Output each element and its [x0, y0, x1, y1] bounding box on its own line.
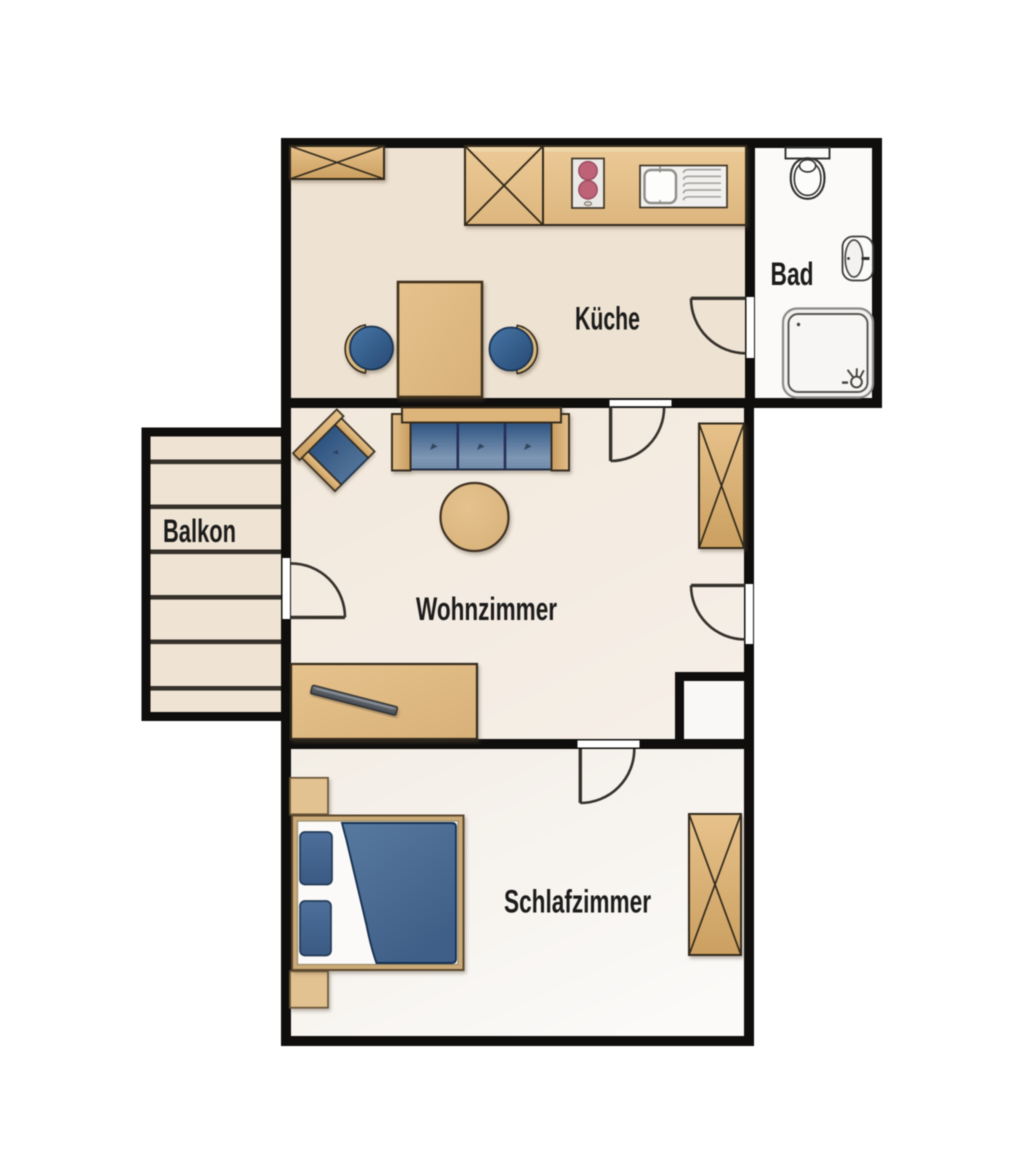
svg-text:Schlafzimmer: Schlafzimmer: [504, 883, 651, 919]
svg-text:Bad: Bad: [771, 256, 814, 292]
svg-text:Wohnzimmer: Wohnzimmer: [416, 591, 557, 627]
svg-text:Balkon: Balkon: [163, 513, 236, 549]
svg-text:Küche: Küche: [575, 301, 640, 337]
